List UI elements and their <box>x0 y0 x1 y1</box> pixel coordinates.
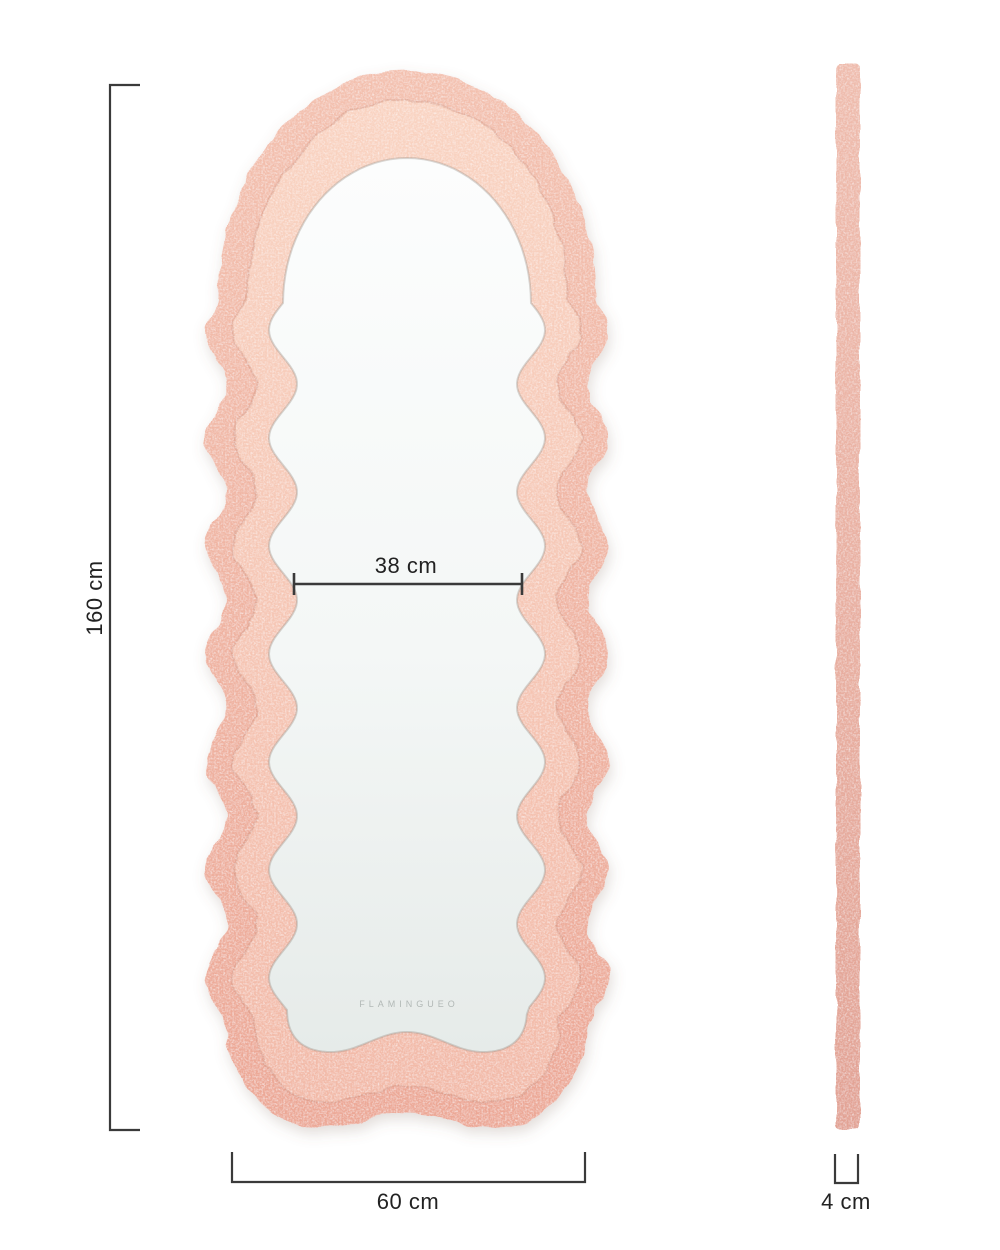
depth-dimension-label: 4 cm <box>786 1189 906 1215</box>
height-dimension-line <box>110 85 140 1130</box>
diagram-canvas <box>0 0 1000 1250</box>
brand-watermark: FLAMINGUEO <box>309 998 509 1010</box>
mirror-glass <box>269 158 545 1052</box>
width-dimension-bracket <box>232 1152 585 1182</box>
inner-width-dimension-label: 38 cm <box>346 553 466 579</box>
outer-width-dimension-label: 60 cm <box>348 1189 468 1215</box>
mirror-side-profile <box>836 64 860 1130</box>
depth-dimension-bracket <box>835 1154 858 1183</box>
height-dimension-label: 160 cm <box>82 538 108 658</box>
mirror-dimension-diagram: 160 cm 38 cm 60 cm 4 cm FLAMINGUEO <box>0 0 1000 1250</box>
